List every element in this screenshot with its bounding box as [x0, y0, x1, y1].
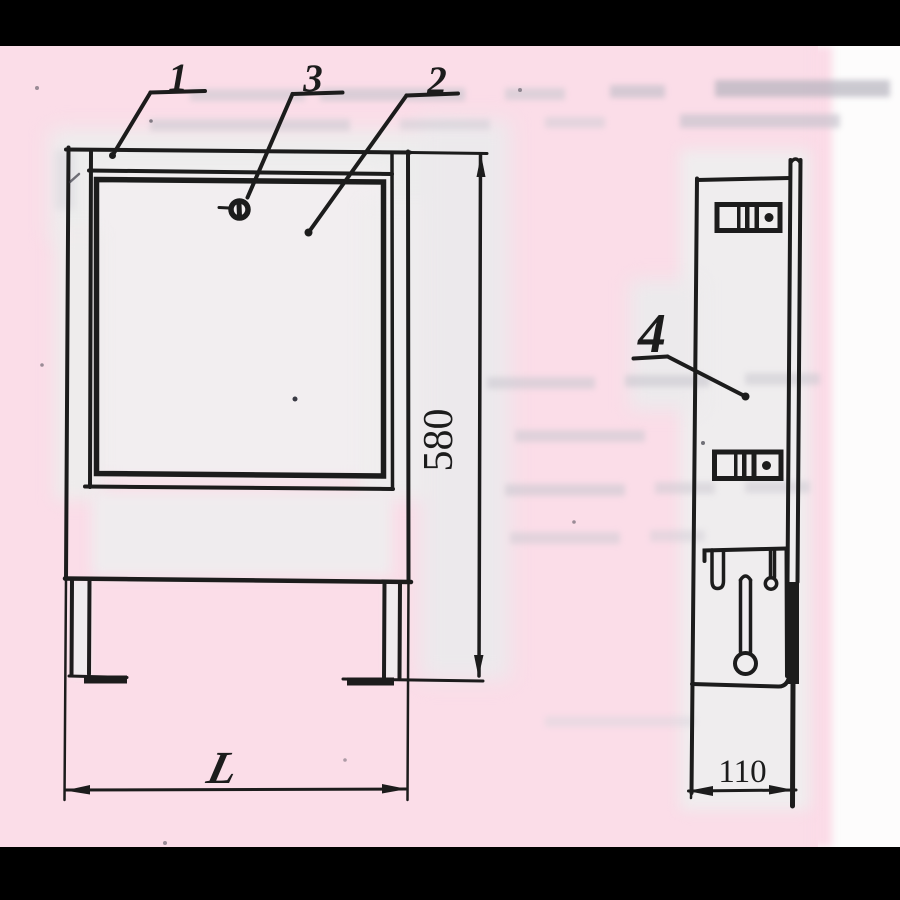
svg-text:4: 4 — [637, 303, 666, 365]
svg-text:580: 580 — [416, 409, 462, 472]
svg-text:110: 110 — [718, 754, 766, 790]
svg-text:1: 1 — [168, 56, 188, 99]
svg-text:3: 3 — [302, 57, 323, 100]
svg-text:L: L — [201, 743, 243, 794]
svg-text:2: 2 — [426, 59, 447, 102]
